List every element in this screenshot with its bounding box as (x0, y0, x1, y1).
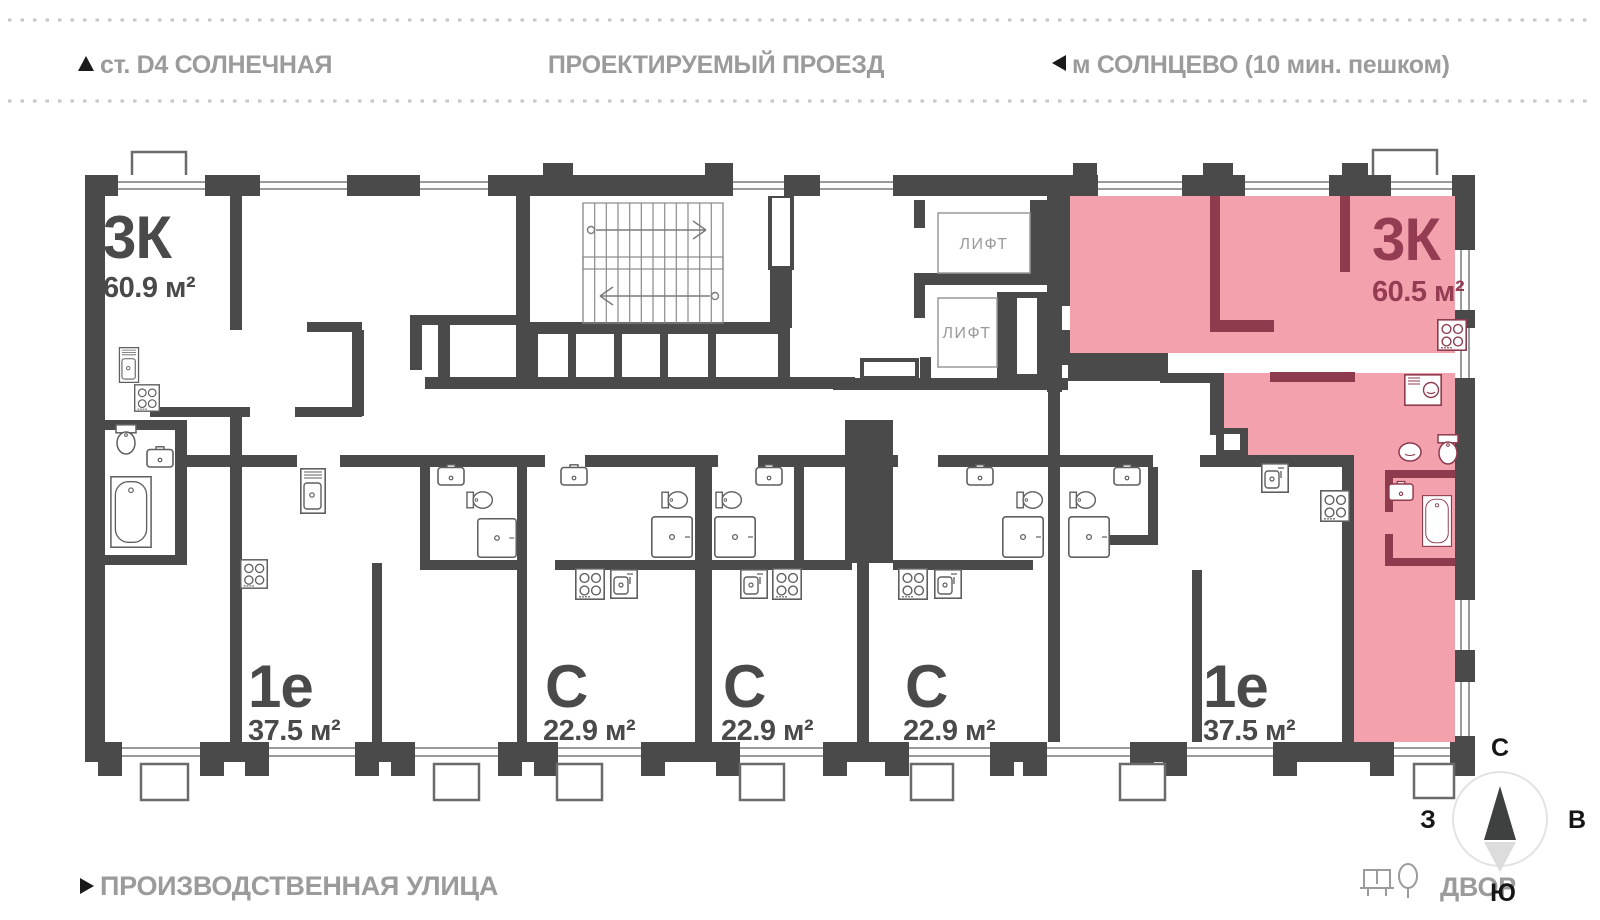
sink-icon (1399, 443, 1421, 461)
shower-icon (1069, 517, 1109, 557)
apartment-type: 1е (248, 653, 313, 720)
apartment-1e-right[interactable]: 1е 37.5 м² (1203, 653, 1296, 747)
sink-icon (1114, 465, 1140, 485)
sink-icon (147, 447, 173, 467)
street-label-top: ПРОЕКТИРУЕМЫЙ ПРОЕЗД (548, 49, 885, 79)
apartment-area: 22.9 м² (721, 715, 814, 747)
elevator-2-label: ЛИФТ (942, 325, 991, 342)
kitchen-sink-icon (301, 469, 325, 513)
kitchen-sink-icon (119, 348, 138, 383)
apartment-area: 22.9 м² (543, 715, 636, 747)
apartment-3k-left[interactable]: 3К 60.9 м² (103, 204, 196, 304)
street-label-bottom-group[interactable]: ПРОИЗВОДСТВЕННАЯ УЛИЦА (80, 871, 498, 901)
compass-west-label: З (1420, 806, 1436, 834)
bathtub-icon (111, 477, 151, 547)
elevator-shaft-slot (1017, 298, 1037, 374)
metro-station-label: м СОЛНЦЕВО (10 мин. пешком) (1072, 51, 1450, 79)
toilet-icon (1017, 492, 1042, 509)
stove-icon (899, 569, 927, 599)
kitchen-sink-icon (1262, 464, 1288, 492)
apartment-type: 3К (1372, 206, 1441, 273)
toilet-icon (116, 425, 136, 454)
left-triangle-icon (1052, 55, 1066, 71)
metro-label[interactable]: м СОЛНЦЕВО (10 мин. пешком) (1052, 51, 1450, 79)
apartment-type: С (905, 653, 947, 720)
apartment-type: С (545, 653, 587, 720)
apartment-studio-3[interactable]: С 22.9 м² (903, 653, 996, 747)
apartment-studio-2[interactable]: С 22.9 м² (721, 653, 814, 747)
apartment-area: 60.5 м² (1372, 276, 1465, 308)
station-label: ст. D4 СОЛНЕЧНАЯ (100, 51, 332, 79)
stove-icon (1438, 320, 1466, 350)
right-triangle-icon (80, 878, 94, 894)
stove-icon (241, 560, 268, 588)
bottom-vents (141, 764, 1454, 800)
elevator-1-label: ЛИФТ (959, 236, 1008, 253)
stove-icon (576, 569, 604, 599)
toilet-icon (662, 492, 687, 509)
street-label-bottom: ПРОИЗВОДСТВЕННАЯ УЛИЦА (100, 871, 498, 901)
shaft-hole (1224, 434, 1240, 450)
shower-icon (652, 517, 692, 557)
up-triangle-icon (78, 56, 94, 71)
stove-icon (1321, 491, 1349, 521)
stove-icon (773, 569, 801, 599)
corridor-duct (862, 360, 917, 378)
apartment-studio-1[interactable]: С 22.9 м² (543, 653, 636, 747)
floorplan-canvas: ст. D4 СОЛНЕЧНАЯ ПРОЕКТИРУЕМЫЙ ПРОЕЗД м … (0, 0, 1600, 920)
header: ст. D4 СОЛНЕЧНАЯ ПРОЕКТИРУЕМЫЙ ПРОЕЗД м … (8, 20, 1592, 101)
stove-icon (135, 385, 160, 411)
sink-icon (438, 465, 464, 485)
compass-south-label: Ю (1490, 879, 1516, 907)
compass-east-label: В (1568, 806, 1586, 834)
apartment-type: 3К (103, 204, 172, 271)
apartment-area: 37.5 м² (248, 715, 341, 747)
toilet-icon (1438, 435, 1458, 464)
apartment-type: 1е (1203, 653, 1268, 720)
bathtub-icon (1423, 496, 1452, 547)
compass-north-label: С (1491, 734, 1509, 762)
sink-icon (756, 465, 782, 485)
washer-icon (1405, 375, 1441, 405)
toilet-icon (1070, 492, 1095, 509)
shaft-duct (770, 196, 792, 268)
shower-icon (715, 517, 755, 557)
apartment-area: 60.9 м² (103, 272, 196, 304)
stairs (583, 203, 723, 323)
apartment-area: 37.5 м² (1203, 715, 1296, 747)
shower-icon (478, 519, 516, 557)
shower-icon (1003, 517, 1043, 557)
sink-icon (1389, 482, 1413, 501)
sink-icon (561, 465, 587, 485)
bench-tree-icon (1360, 864, 1417, 898)
toilet-icon (716, 492, 741, 509)
street-label-station[interactable]: ст. D4 СОЛНЕЧНАЯ (78, 51, 332, 79)
kitchen-sink-icon (611, 570, 637, 598)
toilet-icon (467, 492, 492, 509)
kitchen-sink-icon (741, 570, 767, 598)
apartment-type: С (723, 653, 765, 720)
apartment-area: 22.9 м² (903, 715, 996, 747)
sink-icon (967, 465, 993, 485)
kitchen-sink-icon (935, 570, 961, 598)
apartment-1e-left[interactable]: 1е 37.5 м² (248, 653, 341, 747)
